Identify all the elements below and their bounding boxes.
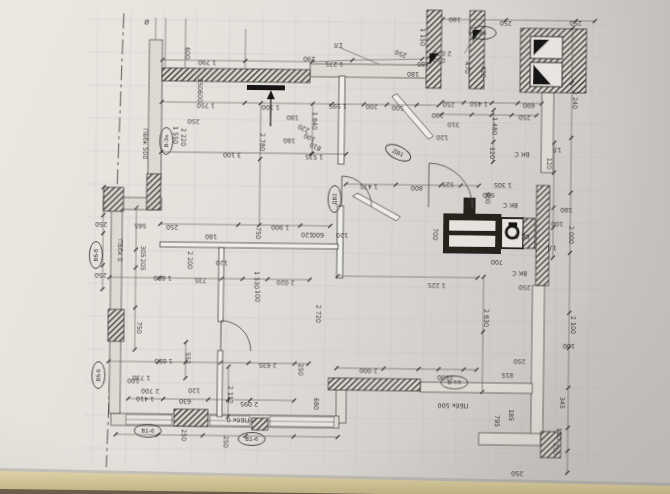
floor-plan-svg: Ø1 7906002506001 7502502 2201 550ПБбк 50…	[0, 0, 670, 494]
floor-plan-photo: Ø1 7906002506001 7502502 2201 550ПБбк 50…	[0, 0, 670, 494]
photo-vignette	[0, 0, 670, 494]
